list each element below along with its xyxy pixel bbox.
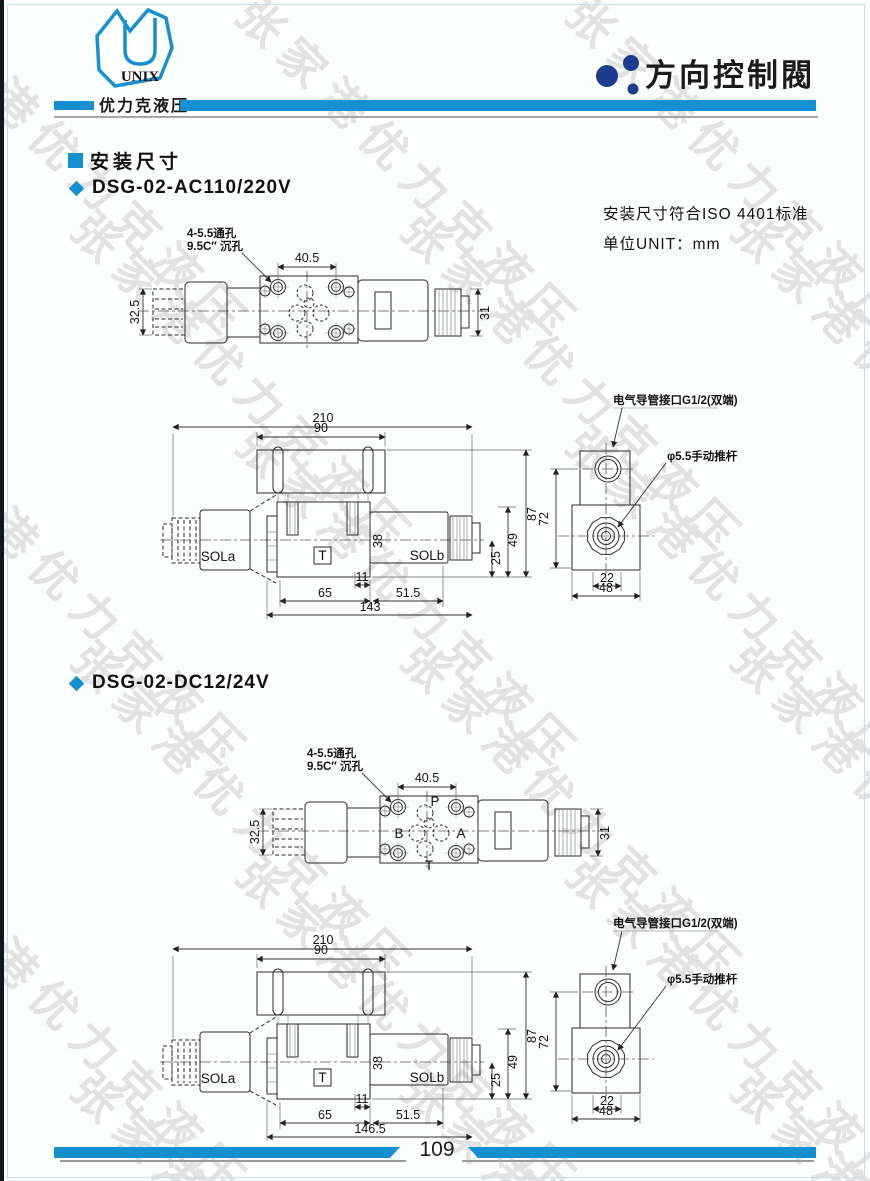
- dim-label: 49: [506, 1055, 520, 1069]
- dim-label: 38: [371, 534, 385, 548]
- section-heading: 安装尺寸: [68, 147, 182, 174]
- drawing-dc-front-view: SOLa SOLb T 38 210 90 87 49 25: [140, 912, 540, 1142]
- port-b-label: B: [394, 826, 403, 841]
- dim-label: 32.5: [130, 300, 142, 324]
- diamond-bullet-icon: [69, 180, 85, 196]
- drawing-ac-front-view: SOLa SOLb T 38 210 90 87 49 25: [140, 390, 540, 620]
- dim-label: 11: [356, 570, 369, 584]
- dim-label: 65: [318, 586, 332, 600]
- dim-height-87: 87: [372, 450, 539, 577]
- port-a-label: A: [456, 826, 465, 841]
- dim-label: 31: [478, 306, 492, 320]
- standard-line: 安装尺寸符合ISO 4401标准: [603, 200, 809, 230]
- section-title: 安装尺寸: [90, 147, 182, 174]
- page-number: 109: [405, 1138, 469, 1162]
- t-port-label: T: [318, 548, 326, 563]
- scan-edge: [0, 0, 4, 1181]
- unix-logo: UNIX: [95, 8, 185, 96]
- drawing-ac-top-view: 40.5 32.5 31 4-5.5通孔 9.5C″ 沉孔: [130, 225, 500, 365]
- hole-callout: 4-5.5通孔 9.5C″ 沉孔: [187, 227, 271, 282]
- hole-note-1: 4-5.5通孔: [307, 747, 357, 760]
- dim-65: 65: [280, 580, 370, 607]
- dim-label: 72: [537, 512, 551, 526]
- dim-25: 25: [489, 541, 503, 577]
- footer-bar-right: [468, 1147, 816, 1158]
- dim-49: 49: [498, 1029, 520, 1099]
- threaded-cap: [153, 289, 185, 335]
- dim-label: 38: [371, 1056, 385, 1070]
- logo-text: UNIX: [121, 69, 160, 85]
- t-port-label: T: [318, 1070, 326, 1085]
- drawing-dc-side-view: 电气导管接口G1/2(双端) φ5.5手动推杆 72 22 48: [530, 908, 870, 1138]
- hole-note-2: 9.5C″ 沉孔: [187, 239, 243, 253]
- company-name: 优力克液压: [99, 92, 189, 116]
- dim-51-5: 51.5: [373, 566, 443, 607]
- dim-label: 32.5: [250, 820, 262, 844]
- model-heading-dc: DSG-02-DC12/24V: [68, 672, 270, 694]
- dim-overall: 146.5: [267, 1102, 472, 1141]
- footer-underline-left: [60, 1160, 406, 1162]
- dim-label: 90: [314, 943, 328, 957]
- connector-ribs: [559, 809, 575, 856]
- sol-b-label: SOLb: [410, 1070, 445, 1085]
- dim-left-height: 32.5: [130, 289, 152, 335]
- model-title-dc: DSG-02-DC12/24V: [92, 672, 270, 694]
- dim-label: 40.5: [295, 251, 319, 265]
- pin-note: φ5.5手动推杆: [667, 449, 738, 463]
- page-title: 方向控制閥: [645, 50, 815, 95]
- dim-label: 49: [506, 533, 520, 547]
- dim-label: 25: [489, 1073, 503, 1087]
- header-bar: [180, 100, 816, 111]
- model-heading-ac: DSG-02-AC110/220V: [68, 177, 292, 199]
- sol-a-label: SOLa: [201, 549, 236, 564]
- port-t-label: T: [425, 858, 433, 873]
- dim-label: 143: [360, 600, 381, 614]
- dim-label: 51.5: [396, 1108, 420, 1122]
- dim-49: 49: [498, 507, 520, 577]
- dim-right-height: 31: [590, 809, 612, 856]
- model-title-ac: DSG-02-AC110/220V: [92, 177, 292, 199]
- dim-height-87: 87: [372, 972, 539, 1099]
- dim-bracket: 90: [257, 421, 385, 446]
- unit-line: 单位UNIT：mm: [603, 230, 809, 260]
- dim-bracket: 90: [257, 943, 385, 968]
- sol-a-label: SOLa: [201, 1071, 236, 1086]
- sol-b-label: SOLb: [410, 548, 445, 563]
- dim-11: 11: [355, 1092, 370, 1111]
- title-dots-icon: [594, 52, 642, 100]
- header-underline: [54, 116, 818, 118]
- dim-overall: 143: [267, 580, 472, 619]
- company-bar-left: [54, 101, 94, 110]
- dim-25: 25: [489, 1063, 503, 1099]
- dim-label: 40.5: [415, 771, 439, 785]
- dim-11: 11: [355, 570, 370, 589]
- dim-label: 48: [599, 581, 613, 595]
- dim-label: 72: [537, 1035, 551, 1049]
- pin-note: φ5.5手动推杆: [667, 972, 738, 986]
- drawing-ac-side-view: 电气导管接口G1/2(双端) φ5.5手动推杆 72 22 48: [530, 385, 870, 615]
- standards-note: 安装尺寸符合ISO 4401标准 单位UNIT：mm: [603, 200, 809, 260]
- hole-callout: 4-5.5通孔 9.5C″ 沉孔: [307, 747, 391, 802]
- footer-underline-right: [462, 1160, 814, 1162]
- catalog-page: 张家港优力克液压张家港优力克液压张家港优力克液压张家港优力克液压张家港优力克液压…: [0, 0, 870, 1181]
- square-bullet-icon: [68, 153, 83, 168]
- dim-right-height: 31: [470, 289, 492, 336]
- hole-note-2: 9.5C″ 沉孔: [307, 759, 363, 773]
- port-p-label: P: [430, 794, 439, 809]
- hole-note-1: 4-5.5通孔: [187, 227, 237, 240]
- diamond-bullet-icon: [69, 675, 85, 691]
- dim-label: 65: [318, 1108, 332, 1122]
- conduit-note: 电气导管接口G1/2(双端): [613, 916, 738, 930]
- footer-bar-left: [54, 1147, 400, 1158]
- dim-label: 48: [599, 1104, 613, 1118]
- dim-label: 11: [356, 1092, 369, 1106]
- drawing-dc-top-view: P B A T 40.5 32.5 31 4-5.5通孔 9.5C″ 沉孔: [250, 745, 620, 885]
- dim-label: 51.5: [396, 586, 420, 600]
- connector-ribs: [439, 289, 455, 336]
- dim-label: 90: [314, 421, 328, 435]
- conduit-note: 电气导管接口G1/2(双端): [613, 393, 738, 407]
- threaded-cap: [273, 809, 305, 855]
- dim-label: 25: [489, 551, 503, 565]
- dim-label: 31: [598, 826, 612, 840]
- dim-label: 146.5: [354, 1122, 385, 1136]
- dim-left-height: 32.5: [250, 809, 272, 855]
